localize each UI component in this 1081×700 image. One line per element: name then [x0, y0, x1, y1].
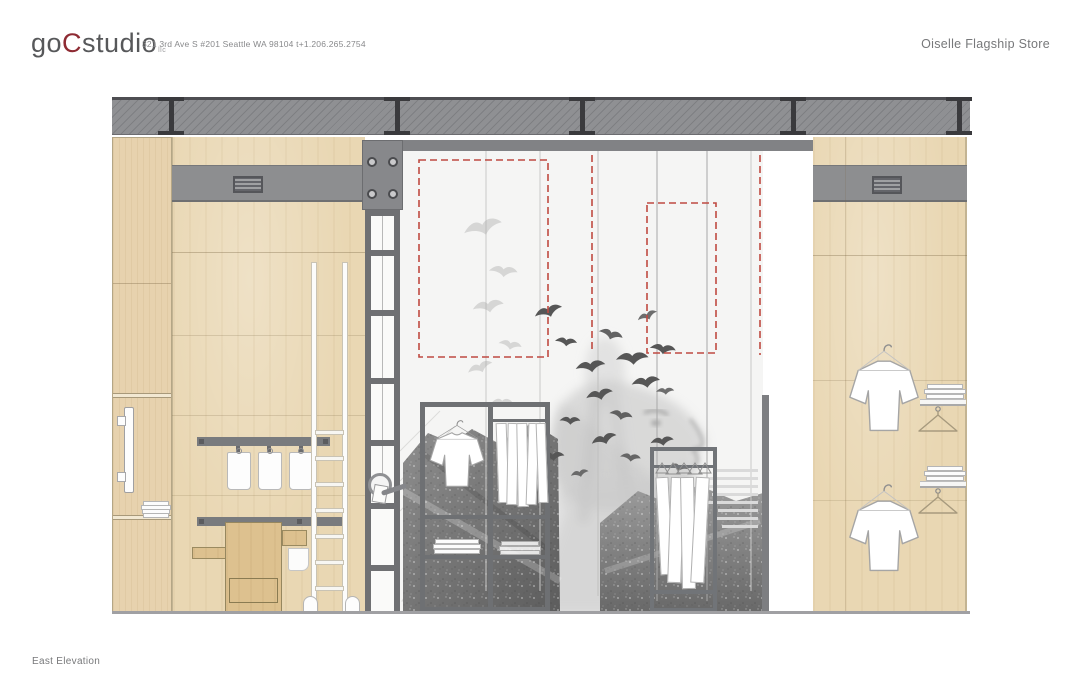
wall-shirt-upper — [845, 340, 923, 436]
cabinet-joint — [113, 283, 171, 284]
wall-ladder-rung — [315, 430, 344, 435]
wall-shelf — [920, 399, 966, 406]
display-rack-right — [650, 447, 717, 612]
elevation-drawing — [0, 0, 1081, 700]
panel-joint — [172, 252, 365, 253]
column-rung — [365, 440, 400, 446]
i-beam-column — [158, 97, 184, 135]
floor-line — [112, 611, 970, 614]
wall-shirt-lower — [845, 480, 923, 576]
wall-ladder-rung — [315, 586, 344, 591]
retail-desk — [225, 522, 282, 612]
column-rung — [365, 378, 400, 384]
wire-hanger — [915, 488, 961, 518]
mural-edge-post — [762, 395, 769, 613]
column-connection-block — [362, 140, 403, 210]
door-pull-bracket — [117, 472, 126, 482]
folded-apparel-stack — [499, 541, 539, 553]
rack-shelf — [425, 555, 545, 559]
folded-apparel-stack — [924, 466, 964, 481]
panel-joint — [172, 415, 365, 416]
panel-joint — [172, 335, 365, 336]
ceiling-beam — [112, 97, 970, 135]
steel-ladder-column — [365, 135, 400, 613]
hanging-garment — [289, 452, 313, 490]
left-wood-cabinet — [112, 137, 172, 613]
i-beam-column — [946, 97, 972, 135]
desk-right-bracket — [282, 530, 307, 546]
folded-apparel-stack — [924, 384, 964, 399]
column-rung — [365, 310, 400, 316]
door-pull-bracket — [117, 416, 126, 426]
folded-apparel-stack — [141, 501, 169, 515]
rack-shelf — [425, 515, 545, 519]
column-rung — [365, 210, 400, 216]
wall-ladder-rung — [315, 534, 344, 539]
presentation-sheet: goCstudiollc 321 3rd Ave S #201 Seattle … — [0, 0, 1081, 700]
panel-joint — [813, 255, 967, 256]
desk-side-shelf — [192, 547, 226, 559]
i-beam-column — [569, 97, 595, 135]
wall-ladder-rung — [315, 456, 344, 461]
hanging-top — [536, 423, 549, 503]
column-rung — [365, 250, 400, 256]
drawing-label: East Elevation — [32, 656, 100, 667]
rack-divider — [488, 407, 493, 607]
column-rung — [365, 565, 400, 571]
i-beam-column — [384, 97, 410, 135]
air-vent-grille — [872, 176, 902, 194]
hvac-duct-band-left — [172, 165, 365, 202]
rack-bottom-bar — [654, 590, 713, 594]
wall-ladder-rung — [315, 560, 344, 565]
folded-apparel-stack — [433, 539, 479, 553]
wall-ladder-rung — [315, 508, 344, 513]
rack-tshirt — [428, 410, 486, 496]
hanging-garment — [227, 452, 251, 490]
rack-rod — [493, 419, 545, 422]
display-rack-left — [420, 402, 550, 612]
wall-shelf — [920, 481, 966, 488]
hanging-sheet — [288, 548, 309, 571]
desk-drawer-front — [229, 578, 278, 603]
panel-joint — [172, 495, 365, 496]
i-beam-column — [780, 97, 806, 135]
wire-hanger — [915, 406, 961, 436]
cabinet-joint — [113, 393, 171, 398]
air-vent-grille — [233, 176, 263, 193]
wall-ladder-rung — [315, 482, 344, 487]
column-rung — [365, 503, 400, 509]
hanging-garment — [258, 452, 282, 490]
